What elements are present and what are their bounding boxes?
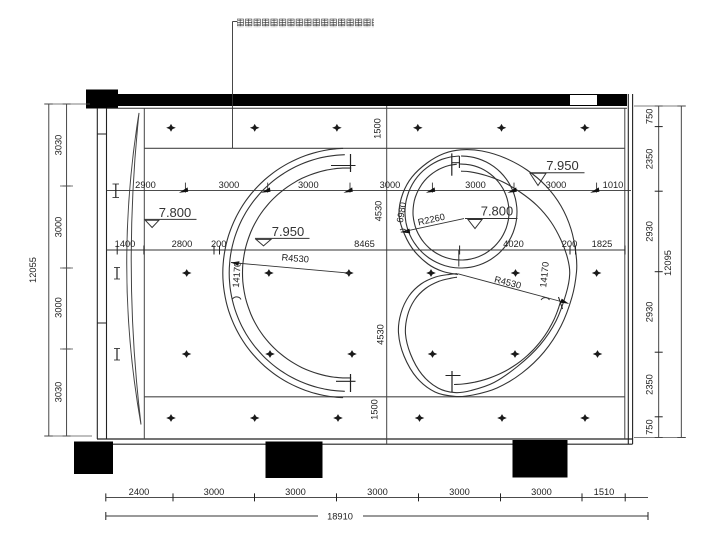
svg-text:7.950: 7.950 xyxy=(272,224,305,239)
svg-text:4530: 4530 xyxy=(376,324,386,345)
svg-text:200: 200 xyxy=(562,239,578,249)
svg-text:2350: 2350 xyxy=(645,149,655,170)
svg-text:2900: 2900 xyxy=(135,180,156,190)
svg-text:3000: 3000 xyxy=(204,487,225,497)
svg-text:1500: 1500 xyxy=(370,399,380,420)
svg-text:2400: 2400 xyxy=(129,487,150,497)
svg-text:3030: 3030 xyxy=(54,382,64,403)
svg-text:3030: 3030 xyxy=(54,135,64,156)
svg-text:2930: 2930 xyxy=(645,221,655,242)
svg-text:7.950: 7.950 xyxy=(546,158,579,173)
svg-text:3000: 3000 xyxy=(449,487,470,497)
svg-text:8465: 8465 xyxy=(354,239,375,249)
svg-text:12055: 12055 xyxy=(28,257,38,283)
svg-text:2930: 2930 xyxy=(645,302,655,323)
svg-text:3000: 3000 xyxy=(285,487,306,497)
svg-text:18910: 18910 xyxy=(327,511,353,521)
svg-text:750: 750 xyxy=(645,419,655,435)
svg-text:2800: 2800 xyxy=(172,239,193,249)
svg-text:1825: 1825 xyxy=(592,239,613,249)
svg-text:7.800: 7.800 xyxy=(481,203,514,218)
svg-text:3000: 3000 xyxy=(546,180,567,190)
svg-text:1510: 1510 xyxy=(594,487,615,497)
svg-text:3000: 3000 xyxy=(54,297,64,318)
svg-text:12095: 12095 xyxy=(663,250,673,276)
svg-text:7.800: 7.800 xyxy=(159,205,192,220)
svg-text:4020: 4020 xyxy=(503,239,524,249)
svg-text:2350: 2350 xyxy=(645,374,655,395)
svg-text:3000: 3000 xyxy=(465,180,486,190)
svg-text:3000: 3000 xyxy=(298,180,319,190)
svg-text:1400: 1400 xyxy=(115,239,136,249)
svg-text:3000: 3000 xyxy=(54,217,64,238)
svg-text:3000: 3000 xyxy=(531,487,552,497)
svg-text:750: 750 xyxy=(645,109,655,125)
svg-text:1010: 1010 xyxy=(603,180,624,190)
svg-text:4530: 4530 xyxy=(374,201,384,222)
svg-text:200: 200 xyxy=(211,239,227,249)
svg-text:3000: 3000 xyxy=(219,180,240,190)
svg-text:1500: 1500 xyxy=(373,118,383,139)
svg-text:3000: 3000 xyxy=(380,180,401,190)
svg-text:14170: 14170 xyxy=(231,262,243,288)
svg-text:3000: 3000 xyxy=(367,487,388,497)
